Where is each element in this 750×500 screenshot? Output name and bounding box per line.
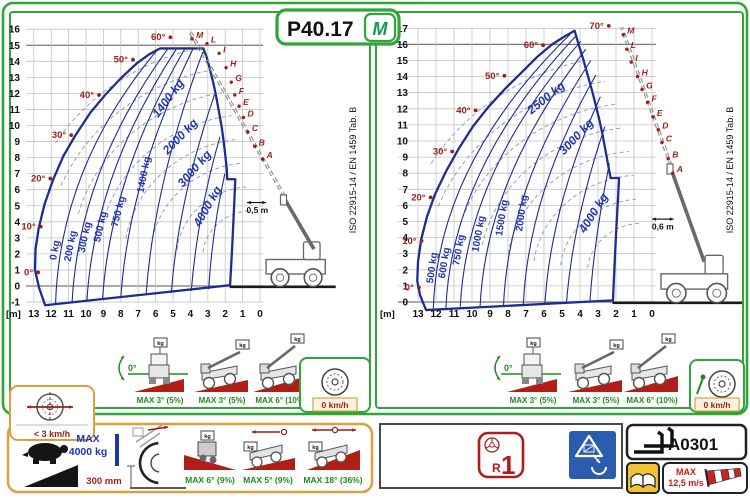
- wheel: [271, 452, 281, 462]
- wheel: [634, 378, 645, 389]
- x-tick: 6: [541, 309, 547, 320]
- slope-label-3: MAX 18° (36%): [303, 475, 362, 485]
- kg-plate-label: kg: [204, 434, 210, 440]
- letter-dot: [253, 145, 256, 148]
- letter-label: G: [646, 80, 653, 90]
- y-tick: 7: [14, 169, 20, 180]
- letter-dot: [224, 66, 227, 69]
- slope-shape: [507, 379, 557, 392]
- tilt-pictogram-side: kgMAX 3° (5%): [194, 340, 249, 405]
- x-tick: 5: [170, 309, 176, 320]
- zero-speed-box: 0 km/h: [690, 360, 744, 412]
- angle-dot: [607, 24, 611, 28]
- tilt-limit-label: MAX 3° (5%): [573, 396, 620, 405]
- offset-dimension-label: 0,6 m: [652, 222, 674, 232]
- wind-max-label: MAX: [676, 467, 696, 477]
- axis-unit: [m]: [6, 309, 21, 320]
- kg-plate-label: kg: [157, 341, 163, 347]
- truck-wheel: [707, 283, 726, 302]
- letter-dot: [261, 158, 264, 161]
- angle-dot: [69, 133, 73, 137]
- wheel: [225, 374, 236, 385]
- letter-dot: [246, 130, 249, 133]
- x-tick: 9: [101, 309, 107, 320]
- manual-book-icon: [631, 474, 655, 487]
- wheel: [317, 457, 327, 467]
- truck-wheel: [304, 269, 322, 287]
- r1-badge: R 1: [479, 433, 523, 480]
- letter-label: D: [662, 121, 668, 131]
- r1-number: 1: [501, 450, 515, 480]
- turtle-leg: [33, 459, 39, 464]
- y-tick: 10: [397, 137, 409, 148]
- angle-label: 60°: [151, 32, 166, 43]
- y-tick: 2: [402, 265, 408, 276]
- chart-left-tyres: 161514131211109876543210-113121110987654…: [6, 25, 370, 412]
- chart-right-stabilizers: 1716151413121110987654321013121110987654…: [380, 21, 744, 412]
- bucket-dot: [600, 466, 603, 469]
- arrow-head: [262, 201, 266, 204]
- y-tick: 0: [402, 298, 408, 309]
- letter-label: F: [239, 86, 245, 96]
- clearance-value: 300 mm: [86, 476, 121, 487]
- kg-plate-label: kg: [294, 337, 300, 343]
- truck-wheel: [271, 269, 289, 287]
- y-tick: 1: [14, 265, 20, 276]
- angle-dot: [474, 109, 478, 113]
- y-tick: 0: [14, 282, 20, 293]
- wheel: [163, 377, 170, 384]
- wheel: [284, 374, 295, 385]
- letter-dot: [660, 141, 663, 144]
- zero-speed-label: 0 km/h: [704, 400, 731, 410]
- creep-speed-label: < 3 km/h: [34, 429, 70, 439]
- x-tick: 4: [577, 309, 583, 320]
- wheel: [599, 374, 610, 385]
- tilt-limit-label: MAX 3° (5%): [199, 396, 246, 405]
- turtle-head: [60, 445, 68, 453]
- letter-label: I: [635, 53, 638, 63]
- load-curve: [87, 49, 177, 301]
- letter-dot: [646, 101, 649, 104]
- kg-plate-label: kg: [312, 445, 318, 451]
- x-tick: 2: [613, 309, 619, 320]
- letter-dot: [630, 60, 633, 63]
- load-box: [198, 442, 216, 456]
- kg-plate-label: kg: [530, 341, 536, 347]
- tilt-pictogram-side2: kgMAX 6° (10%): [624, 334, 678, 405]
- angle-dot: [450, 150, 454, 154]
- load-box: [524, 354, 540, 365]
- letter-dot: [651, 115, 654, 118]
- tilt-pictogram-side2: kgMAX 6° (10%): [253, 334, 307, 405]
- letter-dot: [237, 105, 240, 108]
- angle-label: 50°: [485, 71, 500, 82]
- y-tick: -1: [11, 298, 20, 309]
- offset-dimension: 0,6 m: [652, 217, 674, 231]
- boom-extension-dashed: [191, 31, 286, 196]
- angle-label: 30°: [52, 130, 67, 141]
- r1-letter: R: [492, 461, 501, 475]
- x-tick: 13: [28, 309, 40, 320]
- wind-speed-value: 12,5 m/s: [668, 478, 704, 488]
- angle-dot: [168, 35, 172, 39]
- y-tick: 15: [397, 56, 409, 67]
- letter-label: M: [196, 30, 204, 40]
- x-tick: 10: [466, 309, 478, 320]
- y-tick: 9: [14, 137, 20, 148]
- letter-label: A: [266, 150, 273, 160]
- y-tick: 10: [9, 121, 21, 132]
- x-tick: 7: [135, 309, 141, 320]
- windsock-segment: [734, 468, 741, 478]
- decal-canvas: 161514131211109876543210-113121110987654…: [0, 0, 750, 500]
- letter-dot: [671, 172, 674, 175]
- max-load-value: 4000 kg: [69, 446, 108, 458]
- load-box: [151, 354, 167, 365]
- y-tick: 12: [397, 104, 409, 115]
- letter-label: L: [631, 40, 636, 50]
- y-tick: 3: [402, 249, 408, 260]
- angle-label: 60°: [524, 40, 539, 51]
- wheel: [149, 377, 156, 384]
- x-tick: 9: [487, 309, 493, 320]
- machine-front: [522, 365, 542, 378]
- x-tick: 13: [412, 309, 424, 320]
- x-tick: 1: [631, 309, 637, 320]
- y-tick: 8: [14, 153, 20, 164]
- letter-label: E: [657, 108, 663, 118]
- x-tick: 5: [559, 309, 565, 320]
- x-tick: 12: [46, 309, 58, 320]
- letter-label: F: [652, 93, 658, 103]
- load-curve: [590, 164, 609, 302]
- letter-label: M: [627, 26, 635, 36]
- kg-plate-label: kg: [247, 445, 253, 451]
- letter-label: G: [235, 73, 242, 83]
- zero-speed-box: 0 km/h: [300, 358, 370, 412]
- tyre-icon: [709, 371, 735, 397]
- angle-label: 0°: [405, 283, 414, 294]
- y-tick: 16: [9, 25, 21, 36]
- letter-dot: [190, 37, 193, 40]
- truck-boom: [283, 197, 313, 249]
- angle-dot: [417, 286, 421, 290]
- slope-shape: [134, 379, 184, 392]
- truck-boom: [670, 166, 704, 262]
- load-curve-label: 600 kg: [437, 247, 453, 279]
- wheel: [578, 378, 589, 389]
- zero-degree-icon: 0°: [495, 356, 513, 380]
- wheel: [204, 378, 215, 389]
- standard-ref-right: ISO 22915-14 / EN 1459 Tab. B: [725, 107, 735, 233]
- wheel: [522, 377, 529, 384]
- x-tick: 3: [205, 309, 211, 320]
- load-curve: [446, 36, 576, 307]
- angle-label: 20°: [411, 192, 426, 203]
- y-tick: 4: [14, 217, 20, 228]
- load-curve-label: 750 kg: [110, 195, 128, 228]
- angle-dot: [131, 58, 135, 62]
- angle-dot: [48, 177, 52, 181]
- model-label: P40.17: [287, 18, 354, 41]
- load-curve-label: 300 kg: [77, 221, 94, 254]
- y-tick: 5: [402, 217, 408, 228]
- angle-dot: [97, 93, 101, 97]
- machine-front: [149, 365, 169, 378]
- model-badge: P40.17 M: [277, 10, 399, 44]
- letter-dot: [657, 128, 660, 131]
- zero-degree-label: 0°: [128, 363, 137, 373]
- max-load-label: MAX: [76, 433, 99, 445]
- letter-dot: [230, 80, 233, 83]
- letter-label: B: [672, 150, 678, 160]
- x-tick: 10: [80, 309, 92, 320]
- angle-label: 10°: [402, 236, 417, 247]
- x-tick: 8: [118, 309, 124, 320]
- y-tick: 5: [14, 201, 20, 212]
- angle-label: 0°: [24, 267, 33, 278]
- offset-dimension-label: 0,5 m: [247, 205, 269, 215]
- kg-plate-label: kg: [613, 343, 619, 349]
- wheel: [655, 374, 666, 385]
- load-curve-label: 1000 kg: [470, 215, 487, 253]
- letter-label: A: [676, 164, 683, 174]
- letter-dot: [640, 88, 643, 91]
- angle-label: 30°: [433, 146, 448, 157]
- load-chart-decal: { "header": { "model": "P40.17", "logo_l…: [0, 0, 750, 500]
- letter-dot: [622, 33, 625, 36]
- letter-dot: [667, 157, 670, 160]
- y-tick: 14: [397, 72, 409, 83]
- wheel: [336, 452, 346, 462]
- wheel: [263, 378, 274, 389]
- tilt-pictogram-side: kgMAX 3° (5%): [568, 340, 623, 405]
- truck-cab: [705, 255, 723, 274]
- y-tick: 15: [9, 41, 21, 52]
- wheel: [200, 455, 207, 462]
- lever-knob: [701, 375, 706, 380]
- y-tick: 16: [397, 40, 409, 51]
- boom-carriage: [280, 195, 286, 205]
- slope-label-1: MAX 6° (9%): [185, 475, 235, 485]
- zero-degree-icon: 0°: [119, 356, 137, 380]
- truck-wheel: [667, 283, 686, 302]
- axis-unit: [m]: [380, 309, 395, 320]
- book-right-page: [643, 474, 655, 487]
- boom-extension-dashed: [189, 32, 284, 197]
- x-tick: 1: [240, 309, 246, 320]
- letter-dot: [233, 93, 236, 96]
- letter-label: E: [243, 97, 249, 107]
- load-curve-label: 500 kg: [92, 210, 110, 243]
- letter-dot: [242, 116, 245, 119]
- angle-label: 70°: [589, 21, 604, 32]
- boom: [582, 352, 614, 368]
- angle-label: 20°: [31, 173, 46, 184]
- x-tick: 11: [449, 309, 460, 320]
- letter-label: D: [247, 108, 253, 118]
- x-tick: 8: [505, 309, 511, 320]
- kg-plate-label: kg: [239, 343, 245, 349]
- tilt-row: 0°kgMAX 3° (5%)kgMAX 3° (5%)kgMAX 6° (10…: [495, 334, 744, 412]
- zero-speed-label: 0 km/h: [322, 400, 349, 410]
- angle-dot: [36, 270, 40, 274]
- x-tick: 11: [63, 309, 74, 320]
- letter-dot: [217, 52, 220, 55]
- wheel: [536, 377, 543, 384]
- y-tick: 3: [14, 233, 20, 244]
- zero-degree-label: 0°: [504, 363, 513, 373]
- y-tick: 2: [14, 249, 20, 260]
- tilt-limit-label: MAX 3° (5%): [137, 396, 184, 405]
- x-tick: 2: [222, 309, 228, 320]
- y-tick: 9: [402, 153, 408, 164]
- angle-label: 50°: [114, 55, 129, 66]
- load-curves: 0 kg200 kg300 kg500 kg750 kg1400 kg2000 …: [48, 49, 225, 304]
- letter-label: C: [252, 123, 259, 133]
- load-curve-label: 3000 kg: [175, 147, 215, 190]
- x-tick: 3: [595, 309, 601, 320]
- angle-label: 40°: [80, 90, 95, 101]
- slope-shape: [568, 380, 622, 392]
- wheel: [252, 457, 262, 467]
- angle-dot: [503, 74, 507, 78]
- angle-dot: [541, 43, 545, 47]
- letter-label: H: [230, 59, 237, 69]
- load-chart-sign-icon: [569, 431, 616, 479]
- angle-dot: [429, 195, 433, 199]
- tilt-limit-label: MAX 3° (5%): [510, 396, 557, 405]
- standard-ref-left: ISO 22915-14 / EN 1459 Tab. B: [348, 107, 358, 233]
- tilt-limit-label: MAX 6° (10%): [626, 396, 678, 405]
- y-tick: 7: [402, 185, 408, 196]
- y-tick: 8: [402, 169, 408, 180]
- tilt-row: 0°kgMAX 3° (5%)kgMAX 3° (5%)kgMAX 6° (10…: [119, 334, 370, 412]
- bucket-dot: [594, 466, 597, 469]
- slope-label-2: MAX 5° (9%): [243, 475, 293, 485]
- y-tick: 11: [397, 120, 408, 131]
- x-tick: 0: [257, 309, 263, 320]
- wheel: [210, 457, 217, 464]
- angle-dot: [420, 239, 424, 243]
- arrow-head: [670, 217, 674, 220]
- letter-label: C: [666, 134, 673, 144]
- swing-arc: [495, 356, 500, 380]
- letter-label: H: [642, 68, 649, 78]
- x-tick: 0: [649, 309, 655, 320]
- swing-arc: [119, 356, 124, 380]
- turtle-leg: [50, 459, 56, 464]
- offset-dimension: 0,5 m: [247, 201, 269, 215]
- letter-dot: [636, 75, 639, 78]
- x-tick: 6: [153, 309, 159, 320]
- tilt-pictogram-front: kgMAX 3° (5%): [128, 338, 188, 405]
- y-tick: 6: [402, 201, 408, 212]
- boom: [208, 352, 240, 368]
- y-tick: 13: [397, 88, 409, 99]
- slope-shape: [194, 380, 248, 392]
- letter-label: L: [211, 35, 216, 45]
- y-tick: 13: [9, 73, 21, 84]
- attachment-code: A0301: [668, 435, 718, 454]
- angle-label: 40°: [456, 105, 471, 116]
- arrow-head: [247, 201, 251, 204]
- brand-logo-letter: M: [373, 19, 389, 39]
- letter-dot: [205, 42, 208, 45]
- book-left-page: [631, 474, 643, 487]
- y-tick: 11: [9, 105, 20, 116]
- boom: [638, 346, 666, 368]
- turtle-shell: [28, 443, 62, 461]
- letter-dot: [625, 48, 628, 51]
- x-tick: 7: [523, 309, 529, 320]
- tyre-icon: [322, 369, 348, 395]
- kg-plate-label: kg: [665, 337, 671, 343]
- load-curve-label: 2000 kg: [514, 194, 530, 232]
- y-tick: 12: [9, 89, 21, 100]
- load-curve-label: 0 kg: [48, 239, 62, 261]
- x-tick: 4: [188, 309, 194, 320]
- angle-label: 10°: [21, 222, 36, 233]
- y-tick: 14: [9, 57, 21, 68]
- angle-dot: [39, 225, 43, 229]
- boom: [267, 346, 295, 368]
- letter-label: B: [259, 137, 265, 147]
- arrow-head: [652, 217, 656, 220]
- y-tick: 6: [14, 185, 20, 196]
